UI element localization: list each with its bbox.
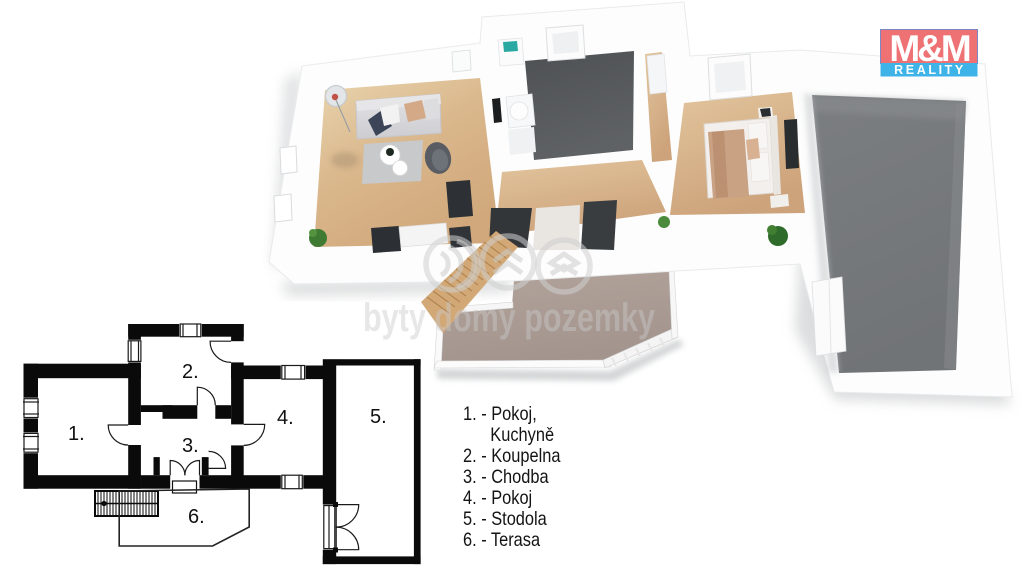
svg-text:byty domy pozemky: byty domy pozemky	[363, 296, 656, 340]
svg-text:REALITY: REALITY	[894, 63, 966, 77]
